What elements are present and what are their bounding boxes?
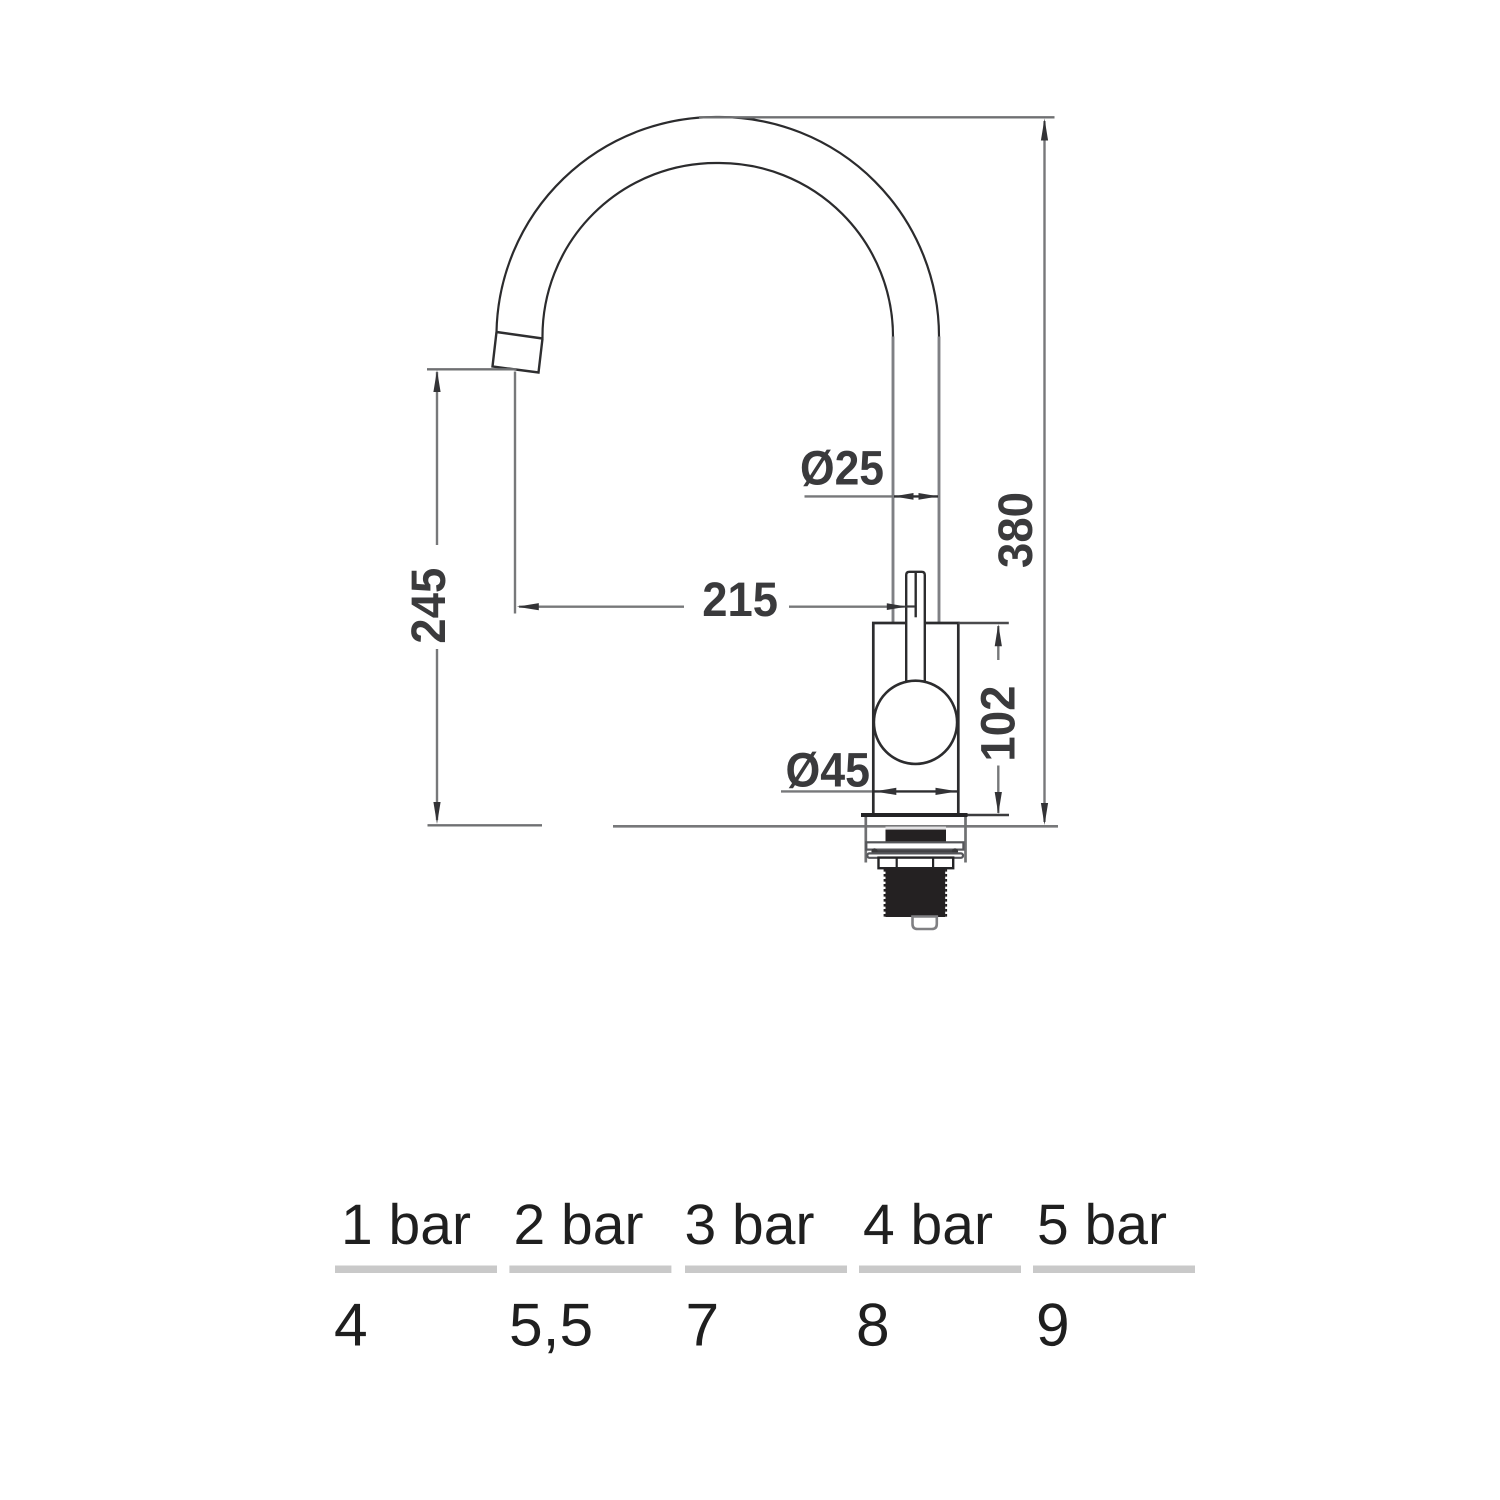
- svg-text:9: 9: [1036, 1291, 1070, 1359]
- svg-text:1 bar: 1 bar: [341, 1193, 471, 1257]
- svg-text:380: 380: [989, 492, 1043, 568]
- svg-text:4: 4: [334, 1291, 368, 1359]
- svg-text:215: 215: [702, 573, 778, 627]
- svg-text:245: 245: [402, 568, 456, 644]
- svg-text:Ø45: Ø45: [786, 744, 871, 798]
- svg-text:7: 7: [686, 1291, 720, 1359]
- svg-text:2 bar: 2 bar: [514, 1193, 644, 1257]
- svg-text:4 bar: 4 bar: [863, 1193, 993, 1257]
- svg-text:102: 102: [972, 686, 1026, 762]
- svg-text:8: 8: [856, 1291, 890, 1359]
- svg-text:Ø25: Ø25: [800, 442, 884, 496]
- svg-text:5 bar: 5 bar: [1037, 1193, 1167, 1257]
- svg-text:5,5: 5,5: [509, 1291, 593, 1359]
- svg-text:3 bar: 3 bar: [685, 1193, 815, 1257]
